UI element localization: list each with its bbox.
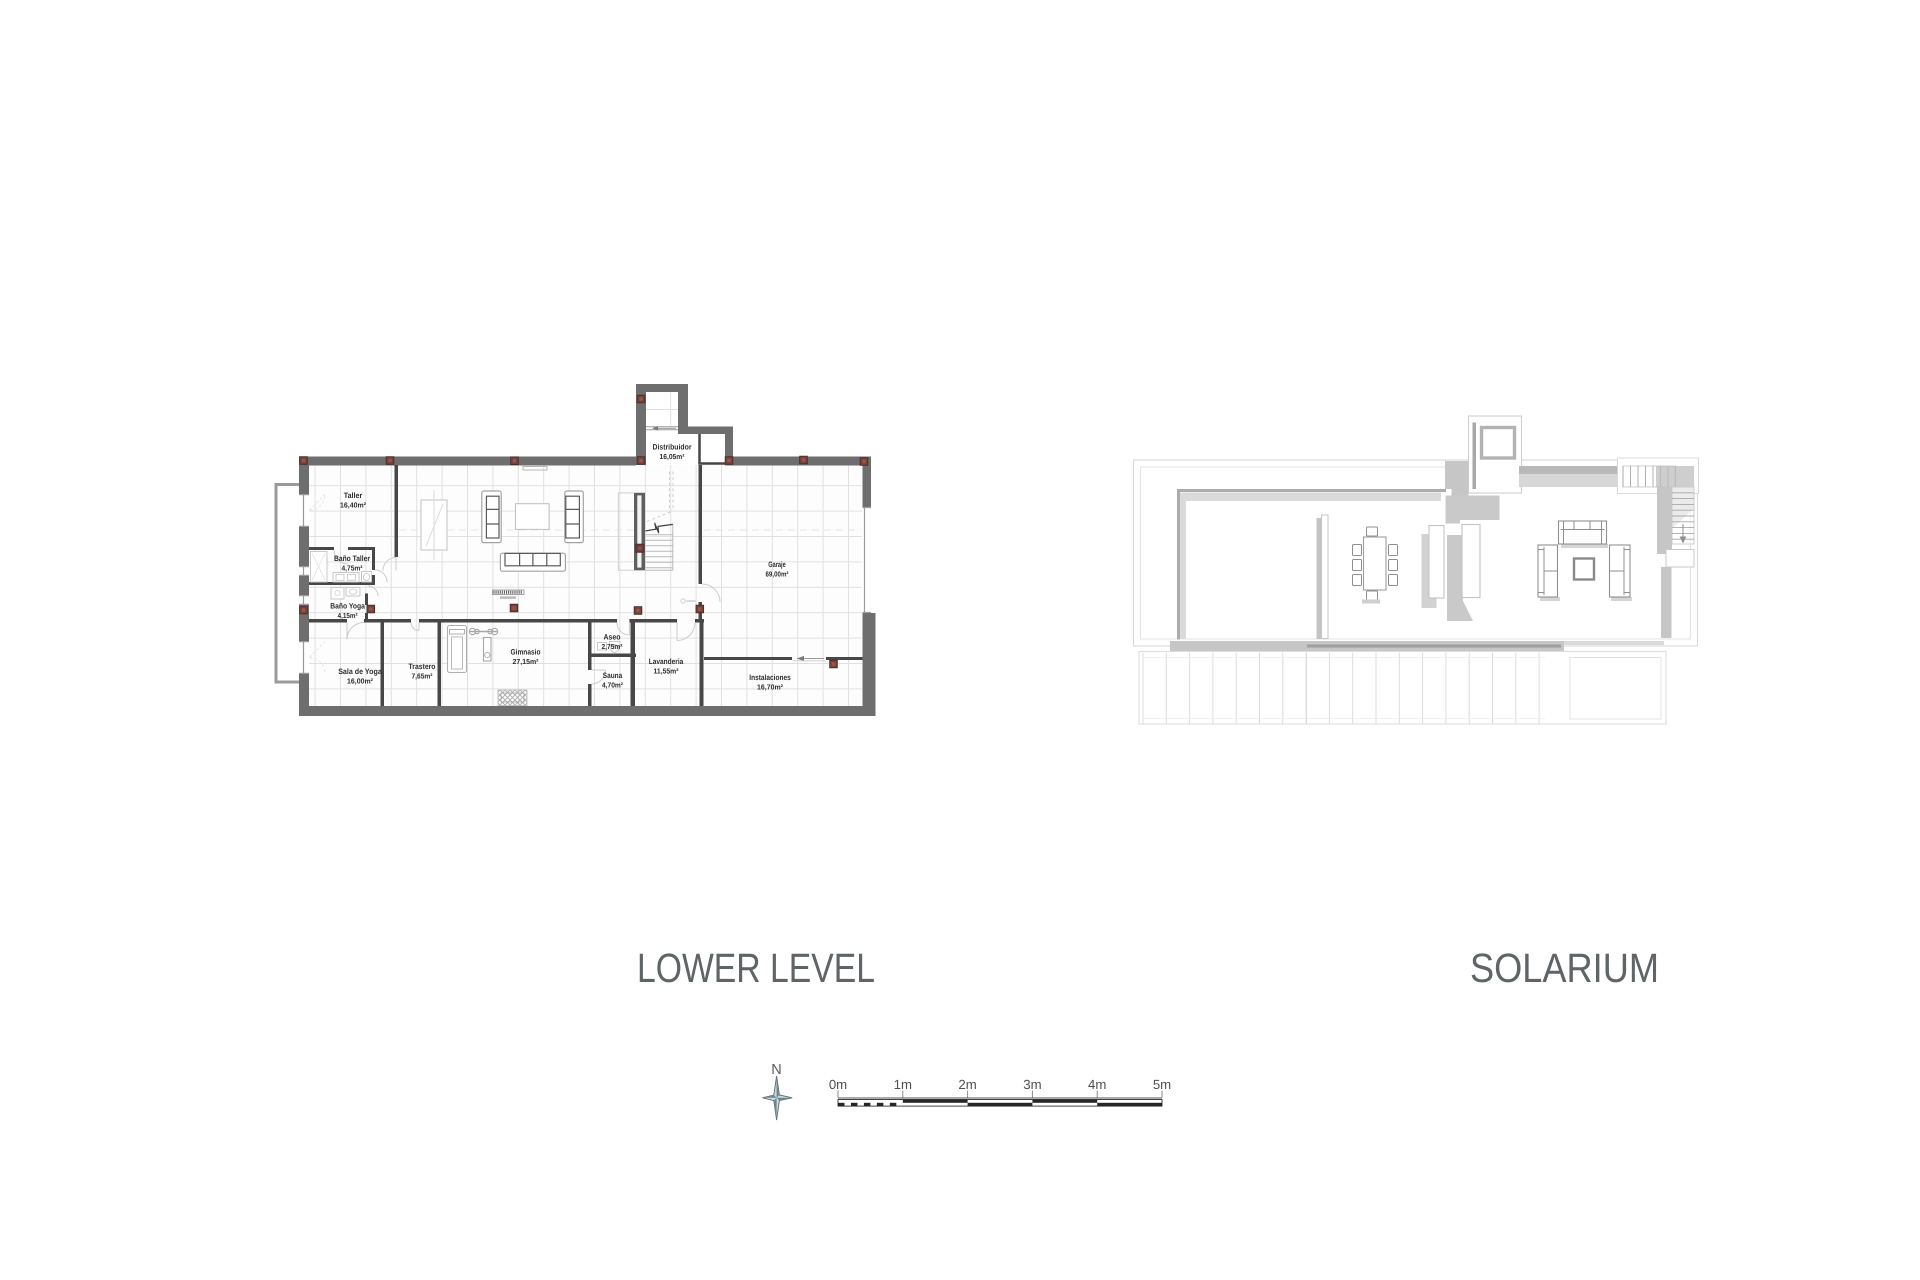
svg-text:Aseo: Aseo xyxy=(604,632,621,641)
svg-text:Taller: Taller xyxy=(344,491,363,500)
svg-text:16,05m²: 16,05m² xyxy=(660,452,686,461)
svg-text:Sala de Yoga: Sala de Yoga xyxy=(338,667,382,676)
svg-text:7,65m²: 7,65m² xyxy=(412,671,434,680)
svg-text:LOWER LEVEL: LOWER LEVEL xyxy=(637,945,875,991)
svg-text:Baño Taller: Baño Taller xyxy=(334,554,370,563)
svg-text:SOLARIUM: SOLARIUM xyxy=(1470,945,1659,991)
svg-text:1m: 1m xyxy=(894,1077,912,1092)
svg-text:4,70m²: 4,70m² xyxy=(602,680,624,689)
svg-text:5m: 5m xyxy=(1153,1077,1171,1092)
svg-text:16,70m²: 16,70m² xyxy=(757,682,784,691)
svg-text:Instalaciones: Instalaciones xyxy=(749,673,791,682)
svg-text:Sauna: Sauna xyxy=(603,671,623,680)
svg-text:2,75m²: 2,75m² xyxy=(602,642,624,651)
svg-text:0m: 0m xyxy=(829,1077,847,1092)
svg-text:16,00m²: 16,00m² xyxy=(347,676,374,685)
svg-text:4m: 4m xyxy=(1088,1077,1106,1092)
svg-text:Garaje: Garaje xyxy=(768,560,786,569)
svg-text:69,00m²: 69,00m² xyxy=(766,569,789,578)
svg-text:11,55m²: 11,55m² xyxy=(654,666,680,675)
svg-text:4,75m²: 4,75m² xyxy=(342,563,364,572)
svg-text:27,15m²: 27,15m² xyxy=(513,657,540,666)
svg-text:Lavanderia: Lavanderia xyxy=(649,657,684,666)
svg-text:16,40m²: 16,40m² xyxy=(340,500,367,509)
svg-text:4,15m²: 4,15m² xyxy=(338,611,358,620)
svg-text:Gimnasio: Gimnasio xyxy=(511,647,541,656)
svg-text:2m: 2m xyxy=(958,1077,976,1092)
svg-text:Baño Yoga: Baño Yoga xyxy=(330,601,365,610)
svg-text:N: N xyxy=(771,1062,781,1078)
svg-text:Distribuidor: Distribuidor xyxy=(653,442,692,451)
svg-text:3m: 3m xyxy=(1023,1077,1041,1092)
svg-text:Trastero: Trastero xyxy=(409,662,436,671)
